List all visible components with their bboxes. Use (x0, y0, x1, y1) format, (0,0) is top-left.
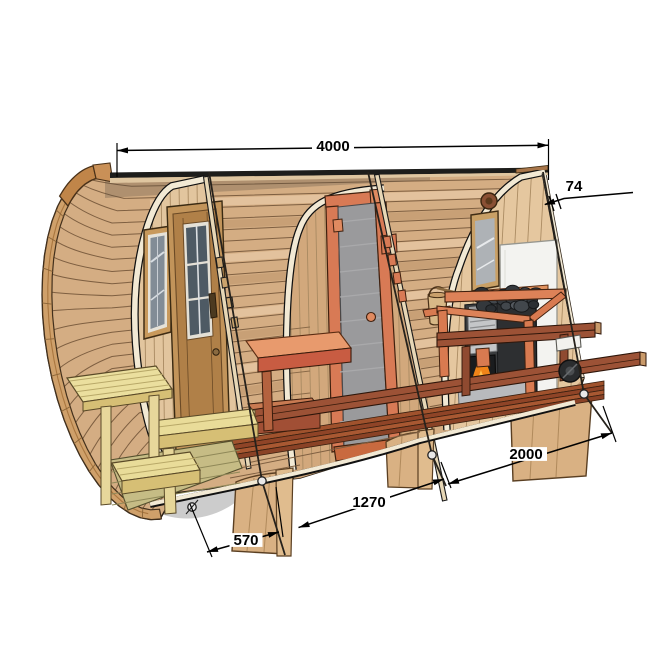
svg-text:74: 74 (566, 178, 583, 195)
svg-text:4000: 4000 (316, 138, 349, 155)
svg-text:2000: 2000 (509, 446, 542, 463)
svg-text:1270: 1270 (352, 494, 385, 511)
svg-text:570: 570 (233, 532, 258, 549)
